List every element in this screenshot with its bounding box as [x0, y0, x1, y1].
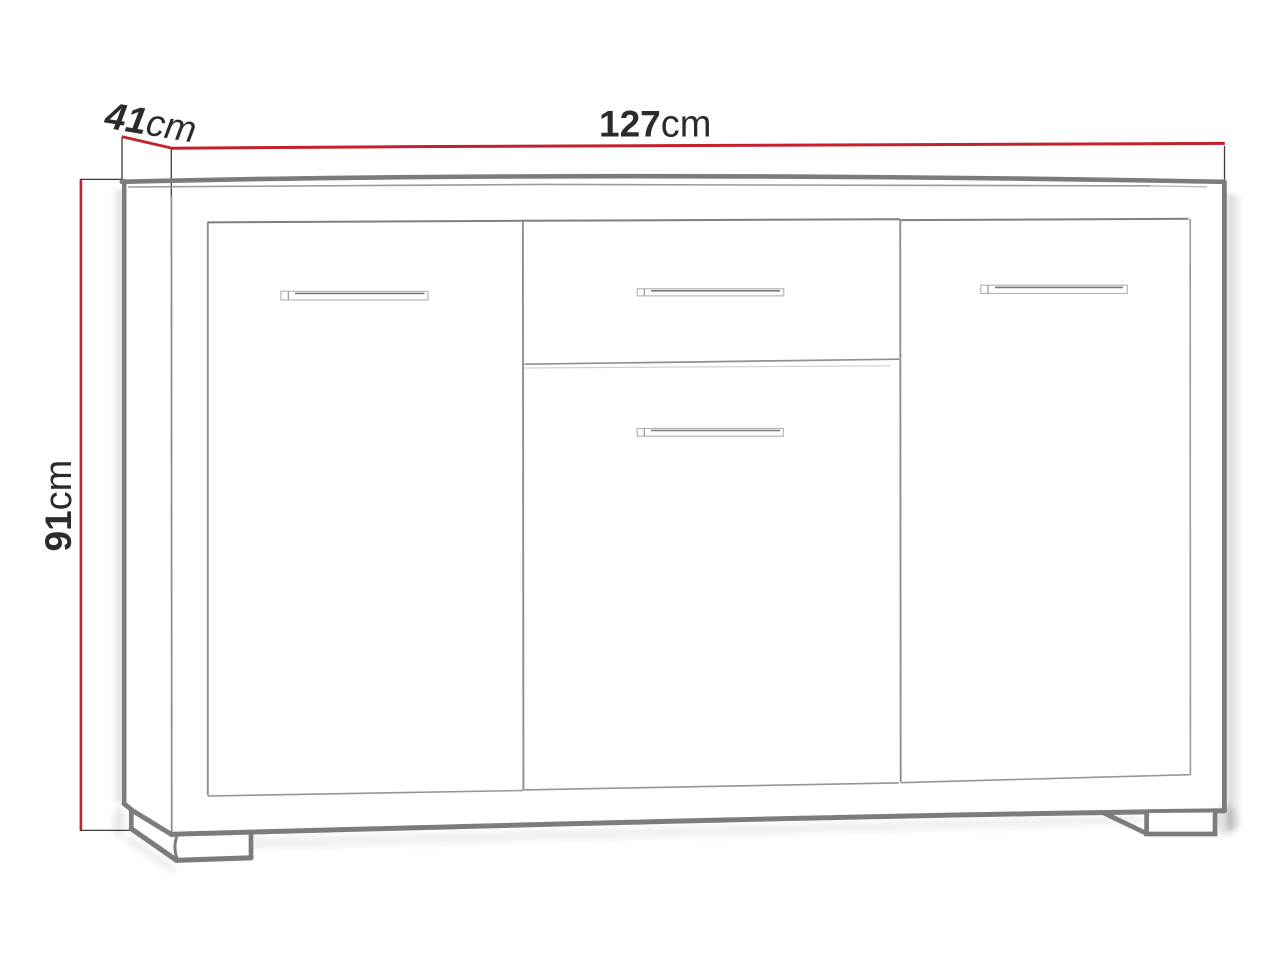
- svg-text:91cm: 91cm: [38, 460, 80, 552]
- svg-text:127cm: 127cm: [599, 103, 711, 145]
